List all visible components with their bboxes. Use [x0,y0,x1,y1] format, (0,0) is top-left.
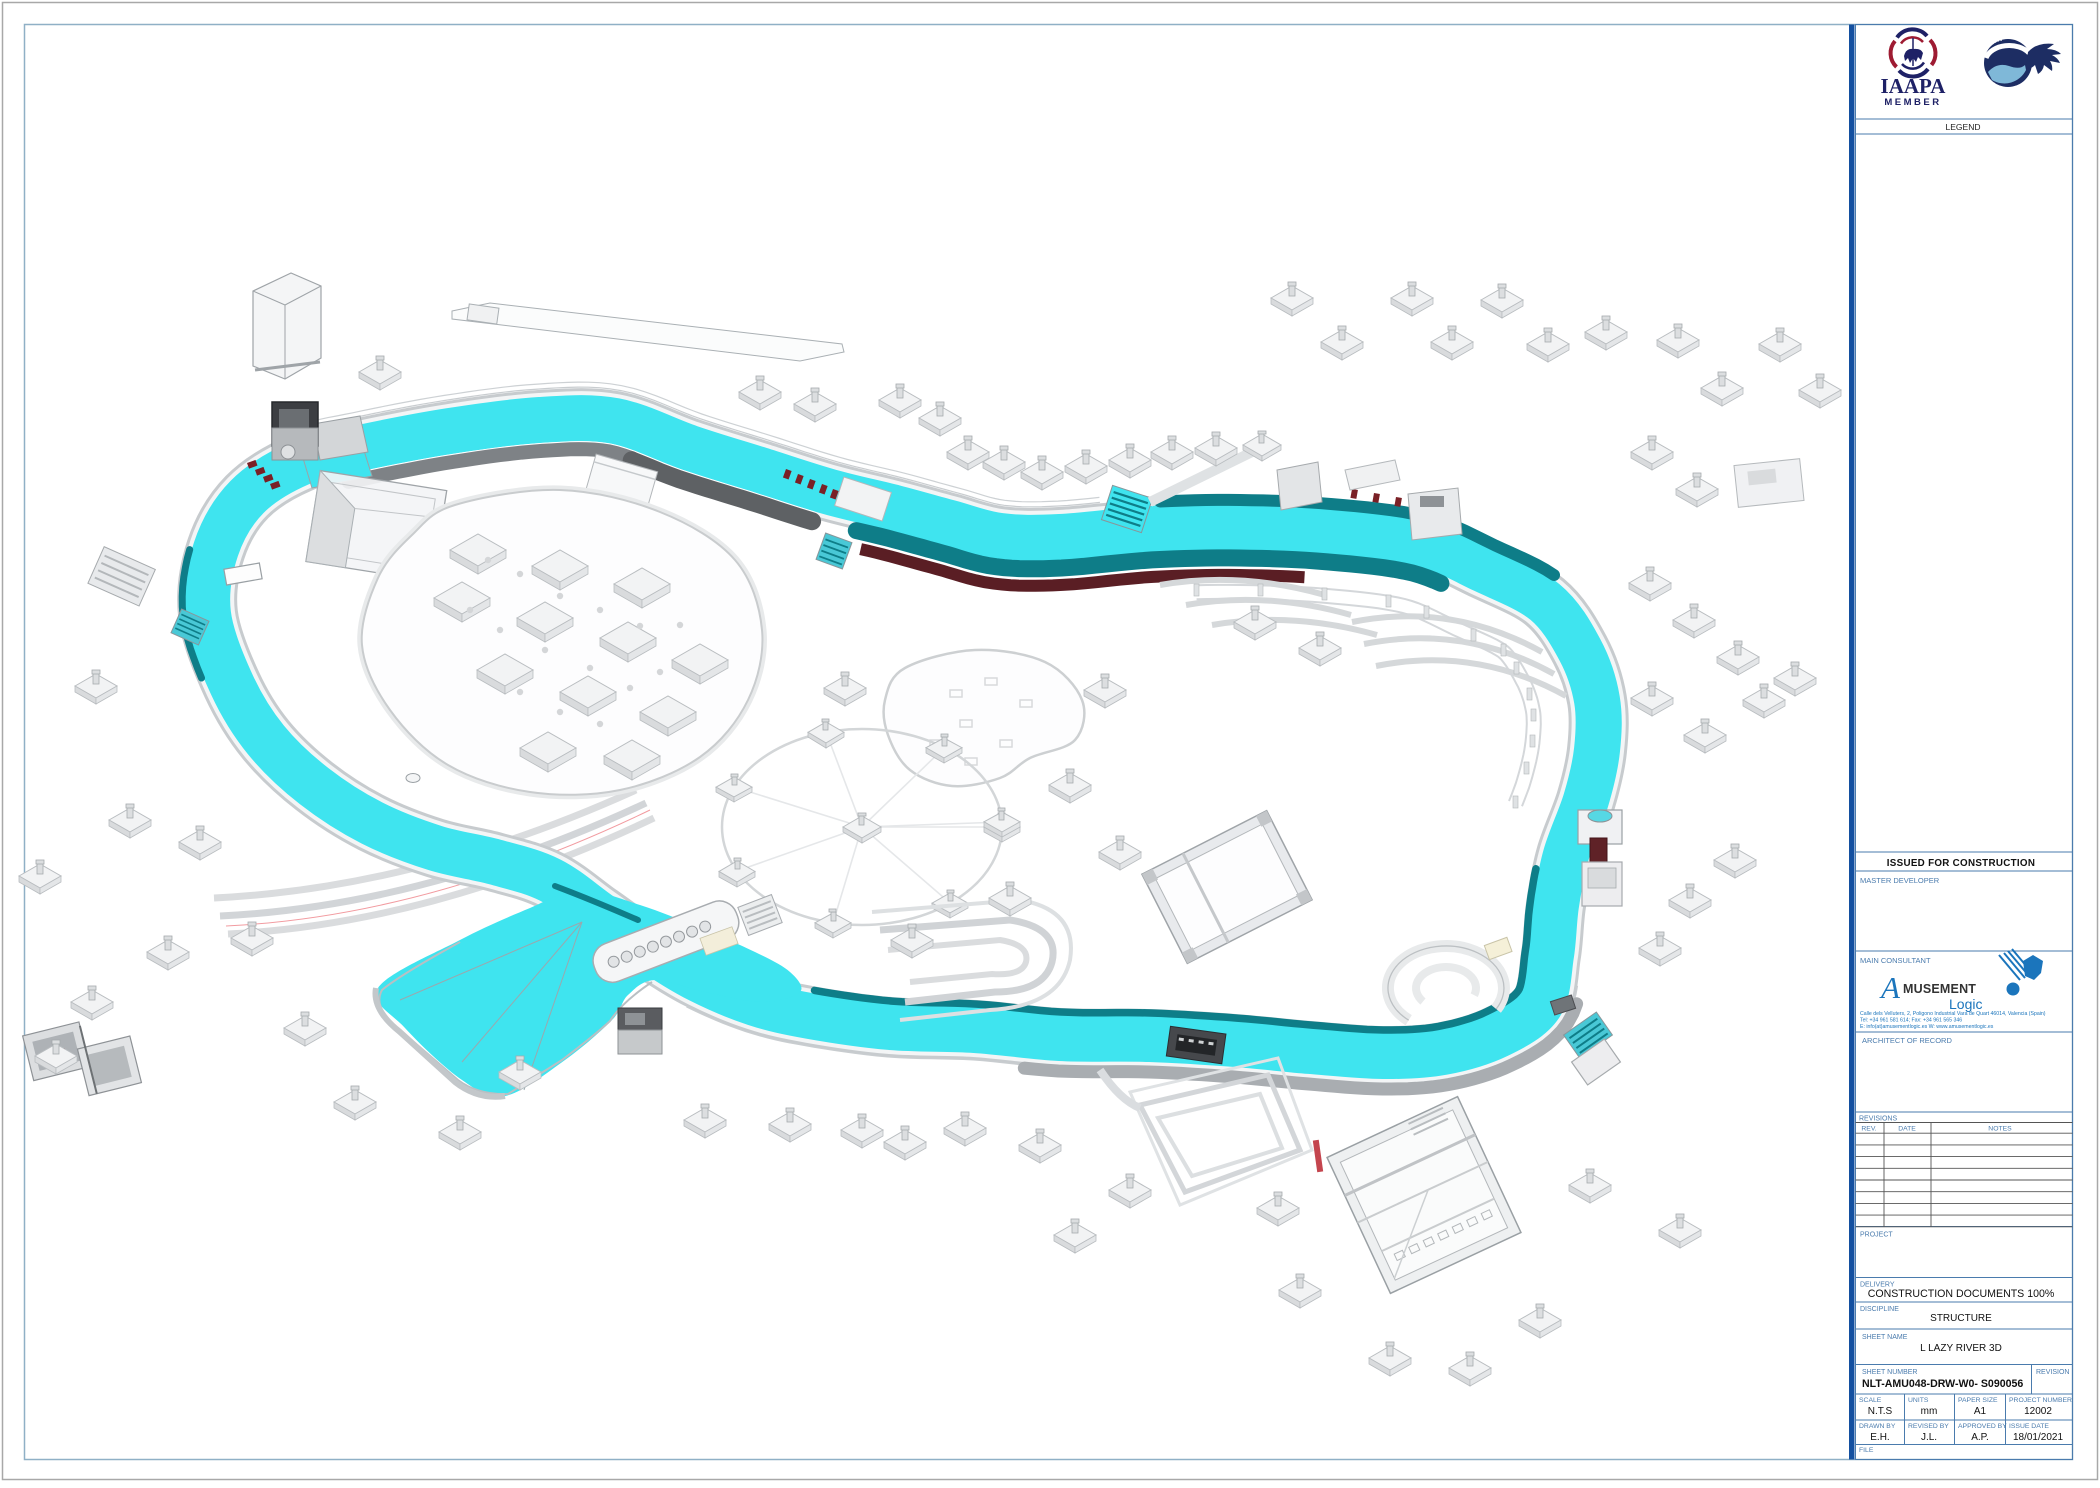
svg-text:MASTER DEVELOPER: MASTER DEVELOPER [1860,876,1940,885]
svg-text:Logic: Logic [1949,996,1982,1012]
svg-text:DRAWN BY: DRAWN BY [1859,1423,1896,1430]
svg-text:SHEET NAME: SHEET NAME [1862,1334,1908,1341]
svg-text:NOTES: NOTES [1988,1126,2012,1133]
svg-text:FILE: FILE [1859,1447,1874,1454]
svg-text:REVISIONS: REVISIONS [1859,1116,1897,1123]
svg-text:MEMBER: MEMBER [1884,97,1941,108]
svg-text:PAPER SIZE: PAPER SIZE [1958,1397,1998,1404]
svg-text:SHEET NUMBER: SHEET NUMBER [1862,1369,1918,1376]
svg-text:REV.: REV. [1861,1126,1876,1133]
svg-text:SCALE: SCALE [1859,1397,1882,1404]
svg-text:MUSEMENT: MUSEMENT [1903,982,1976,996]
svg-text:Tel: +34 961 581 614; Fax: +34: Tel: +34 961 581 614; Fax: +34 961 565 3… [1860,1018,1962,1024]
svg-text:PROJECT: PROJECT [1860,1232,1893,1239]
svg-text:UNITS: UNITS [1908,1397,1929,1404]
svg-text:REVISION: REVISION [2036,1369,2069,1376]
svg-text:12002: 12002 [2024,1406,2052,1417]
svg-text:REVISED BY: REVISED BY [1908,1423,1949,1430]
svg-text:A.P.: A.P. [1971,1432,1989,1443]
svg-text:L LAZY RIVER 3D: L LAZY RIVER 3D [1920,1343,2002,1354]
svg-text:NLT-AMU048-DRW-W0- S090056: NLT-AMU048-DRW-W0- S090056 [1862,1378,2023,1390]
svg-text:E.H.: E.H. [1870,1432,1889,1443]
svg-text:MAIN CONSULTANT: MAIN CONSULTANT [1860,956,1931,965]
svg-text:IAAPA: IAAPA [1881,74,1947,98]
svg-text:CONSTRUCTION DOCUMENTS 100%: CONSTRUCTION DOCUMENTS 100% [1868,1288,2055,1300]
svg-text:LEGEND: LEGEND [1946,122,1981,132]
svg-text:A1: A1 [1974,1406,1987,1417]
svg-text:DISCIPLINE: DISCIPLINE [1860,1306,1899,1313]
svg-text:E: info(at)amusementlogic.es W: E: info(at)amusementlogic.es W: www.amus… [1860,1024,1994,1030]
svg-text:ISSUED FOR CONSTRUCTION: ISSUED FOR CONSTRUCTION [1887,858,2035,869]
svg-text:J.L.: J.L. [1921,1432,1937,1443]
svg-text:PROJECT NUMBER: PROJECT NUMBER [2009,1397,2072,1404]
svg-text:A: A [1879,970,1901,1005]
svg-text:APPROVED BY: APPROVED BY [1958,1423,2007,1430]
svg-text:N.T.S: N.T.S [1868,1406,1893,1417]
svg-text:DATE: DATE [1898,1126,1916,1133]
svg-text:mm: mm [1921,1406,1938,1417]
svg-text:ISSUE DATE: ISSUE DATE [2009,1423,2049,1430]
svg-text:18/01/2021: 18/01/2021 [2013,1432,2063,1443]
svg-text:Calle dels Velluters, 2, Polig: Calle dels Velluters, 2, Poligono Indust… [1860,1011,2046,1017]
svg-text:STRUCTURE: STRUCTURE [1930,1313,1992,1324]
svg-text:ARCHITECT OF RECORD: ARCHITECT OF RECORD [1862,1036,1952,1045]
